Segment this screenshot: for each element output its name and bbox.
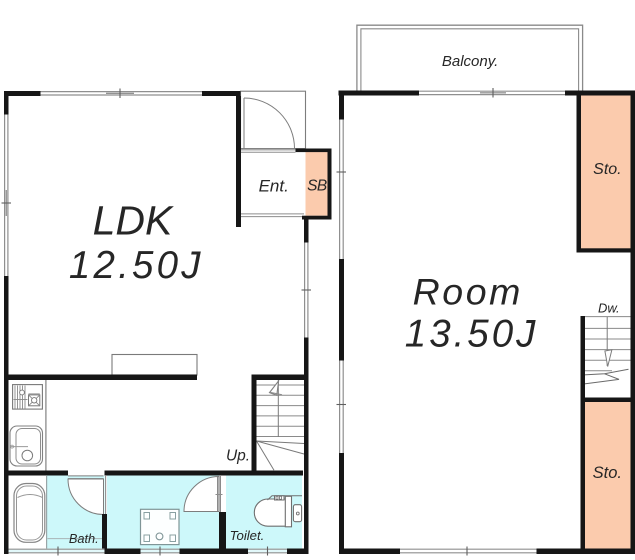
svg-text:13.50J: 13.50J — [405, 312, 539, 355]
svg-text:Sto.: Sto. — [593, 161, 621, 178]
svg-text:LDK: LDK — [93, 198, 174, 244]
svg-text:12.50J: 12.50J — [69, 244, 204, 287]
svg-text:Bath.: Bath. — [69, 531, 99, 546]
svg-text:Balcony.: Balcony. — [442, 53, 498, 70]
svg-text:Sto.: Sto. — [593, 464, 622, 482]
svg-text:Up.: Up. — [226, 447, 250, 464]
svg-text:Ent.: Ent. — [259, 176, 289, 195]
svg-text:Toilet.: Toilet. — [230, 528, 265, 543]
svg-text:Dw.: Dw. — [598, 301, 620, 316]
svg-text:Room: Room — [413, 271, 523, 313]
svg-text:SB: SB — [307, 178, 327, 195]
